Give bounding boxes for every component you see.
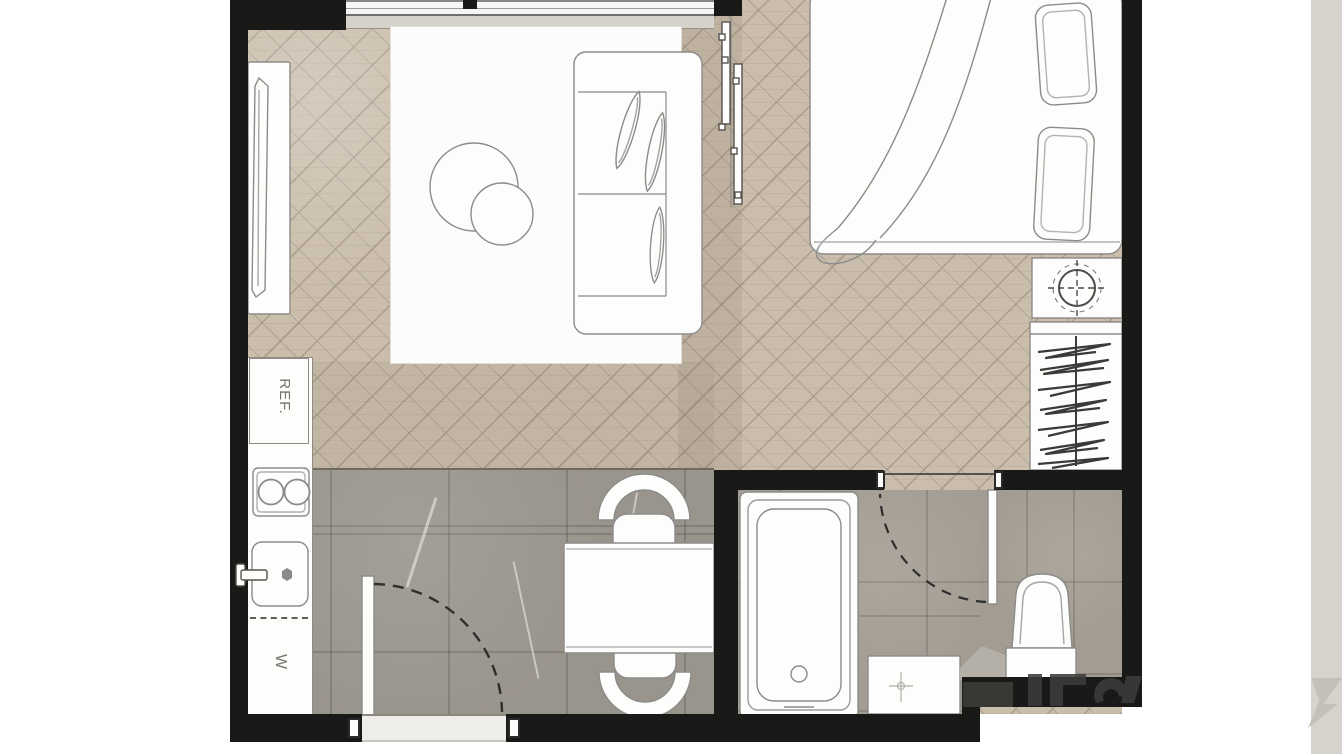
watermark-layer	[0, 0, 1342, 754]
floorplan-page: REF. W	[0, 0, 1342, 754]
watermark-logo-fragment	[963, 674, 1142, 707]
page-margin-band	[1311, 0, 1342, 754]
